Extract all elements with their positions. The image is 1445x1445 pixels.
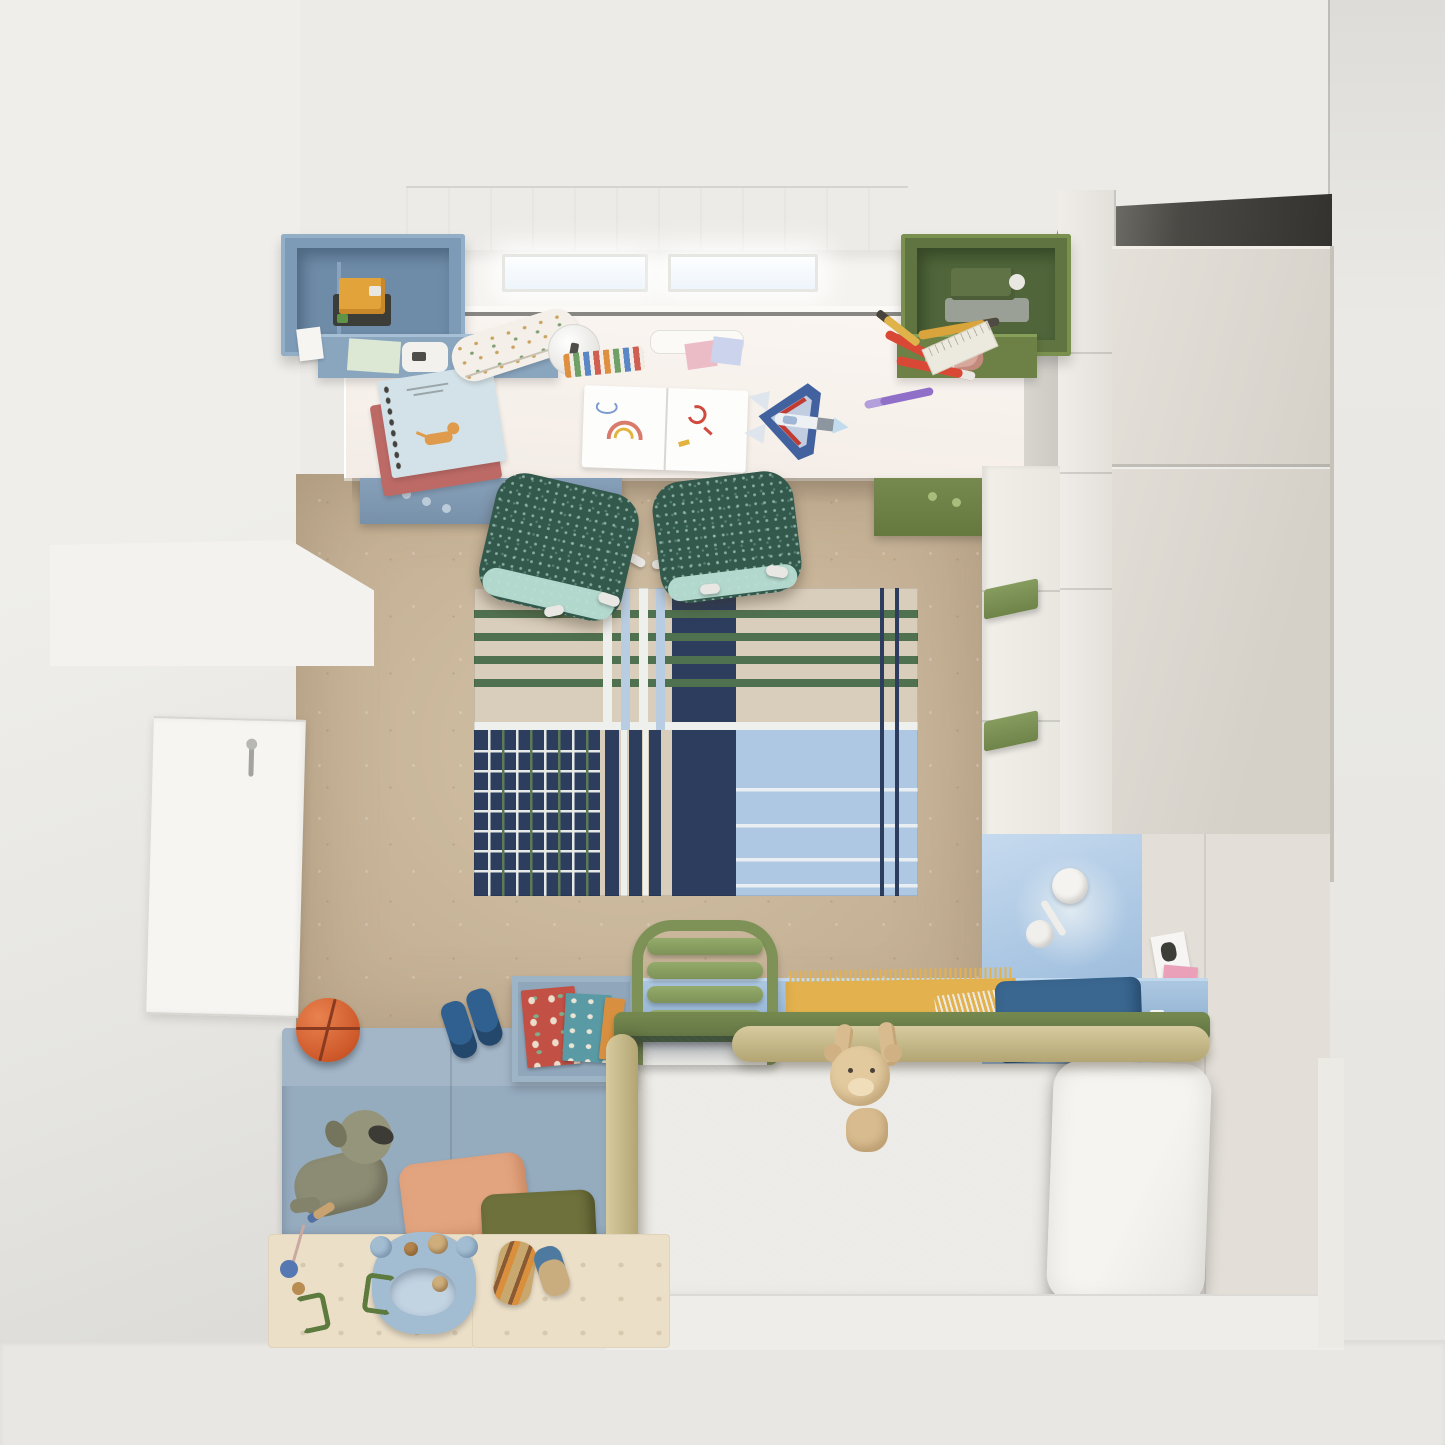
toy-body [951,268,1015,300]
window-pane-left [502,254,648,292]
green-drawer-handle [984,578,1038,619]
tape-dispenser [402,342,448,372]
hippo-ear [370,1236,392,1258]
bed-platform-side [1318,1058,1344,1348]
toy-bead [280,1260,298,1278]
wooden-knob [432,1276,448,1292]
green-drawer-handle [984,710,1038,751]
window-pane-right [668,254,818,292]
panel-seam [1058,472,1114,474]
door-handle [248,743,254,777]
drawer-knob [442,504,451,513]
lego-detail [369,286,381,296]
toy-wheel [1009,274,1025,290]
open-sketchbook [582,385,749,473]
number-doodle [703,427,712,436]
lego-body [339,278,385,314]
teddy-eye [848,1068,853,1073]
floor-band [0,1340,1445,1445]
teddy-body [846,1108,888,1152]
bed-pillow [1046,1059,1212,1306]
teddy-ear [884,1044,902,1062]
star-doodle [678,439,690,447]
desk-chair-right [649,468,805,606]
ladder-rung [647,938,763,955]
lego-robot-toy [333,278,397,332]
bed-platform [606,1294,1344,1350]
mint-paper [347,338,401,374]
notebook-writing [413,389,443,396]
plush-dog [290,1110,404,1218]
wardrobe-top [1112,246,1334,882]
cat-tail [416,431,428,438]
safety-rail-top [732,1026,1210,1062]
ladder-rung [647,986,763,1003]
drawer-knob [422,497,431,506]
door [146,716,306,1018]
lego-detail [337,314,348,323]
lamp-head [1052,868,1088,904]
sticky-note-lavender [711,336,744,365]
hippo-ear [456,1236,478,1258]
toy-sewing-machine [945,268,1031,326]
lego-jet-plane [739,368,856,474]
drawer-knob [952,498,961,507]
wooden-knob [404,1242,418,1256]
wall-right [1328,0,1445,1445]
drawer-column [982,466,1060,880]
green-hook-toy [361,1272,396,1316]
wooden-knob [428,1234,448,1254]
toy-bead [292,1282,305,1295]
wall-left [0,0,300,1348]
white-card [296,327,324,362]
notebook-spiral [377,364,507,479]
basketball [296,998,360,1062]
hippo-mouth [390,1268,456,1316]
rug [474,588,918,896]
teddy-head [830,1046,890,1106]
teddy-bear [822,1020,920,1154]
rainbow-doodle [607,420,644,440]
cat-doodle [415,419,465,452]
swirl-doodle [684,402,710,428]
lamp-glow [1006,846,1136,976]
lamp-base [1026,920,1054,948]
room-scene [0,0,1445,1445]
teddy-snout [848,1078,874,1096]
panel-seam [1058,588,1114,590]
drawer-knob [928,492,937,501]
scribble-doodle [595,400,617,415]
ladder-rung [647,962,763,979]
teddy-eye [870,1068,875,1073]
